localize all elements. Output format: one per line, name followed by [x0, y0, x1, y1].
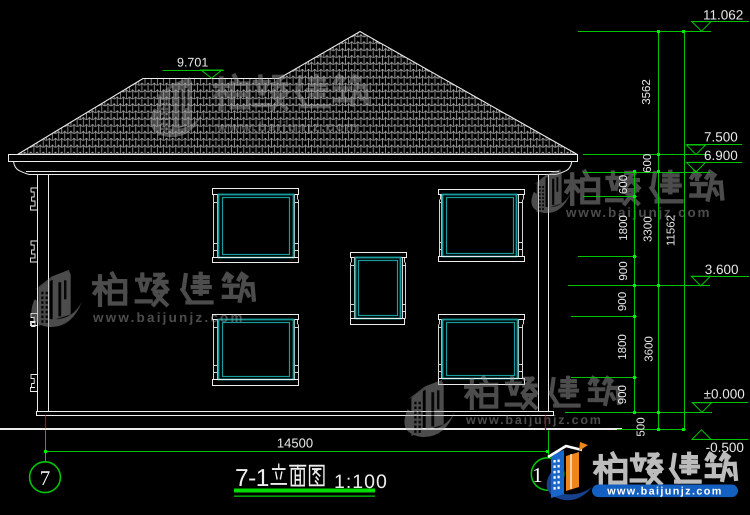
svg-text:11562: 11562	[666, 215, 678, 246]
svg-text:7.500: 7.500	[704, 130, 738, 145]
svg-text:6.900: 6.900	[704, 148, 738, 163]
svg-text:1800: 1800	[617, 334, 629, 360]
svg-text:7: 7	[40, 466, 51, 490]
svg-text:3600: 3600	[644, 336, 656, 362]
svg-text:600: 600	[618, 175, 630, 194]
svg-text:1: 1	[532, 463, 543, 487]
svg-text:www.baijunjz.com: www.baijunjz.com	[606, 486, 723, 498]
svg-text:www.baijunjz.com: www.baijunjz.com	[92, 310, 245, 325]
svg-text:1800: 1800	[618, 215, 630, 241]
svg-text:900: 900	[618, 261, 630, 280]
svg-text:600: 600	[642, 154, 654, 173]
svg-text:11.062: 11.062	[703, 7, 743, 22]
svg-text:7-1: 7-1	[235, 465, 269, 492]
svg-text:500: 500	[636, 417, 648, 436]
svg-text:3.600: 3.600	[705, 262, 739, 277]
svg-text:www.baijunjz.com: www.baijunjz.com	[465, 413, 603, 427]
svg-text:3300: 3300	[643, 216, 655, 242]
svg-text:www.baijunjz.com: www.baijunjz.com	[216, 119, 359, 134]
svg-text:900: 900	[617, 292, 629, 311]
svg-text:3562: 3562	[641, 79, 653, 105]
svg-text:www.baijunjz.com: www.baijunjz.com	[565, 205, 711, 220]
svg-text:9.701: 9.701	[177, 56, 208, 70]
svg-text:14500: 14500	[277, 435, 313, 450]
svg-text:900: 900	[617, 385, 629, 404]
svg-text:±0.000: ±0.000	[704, 387, 745, 402]
